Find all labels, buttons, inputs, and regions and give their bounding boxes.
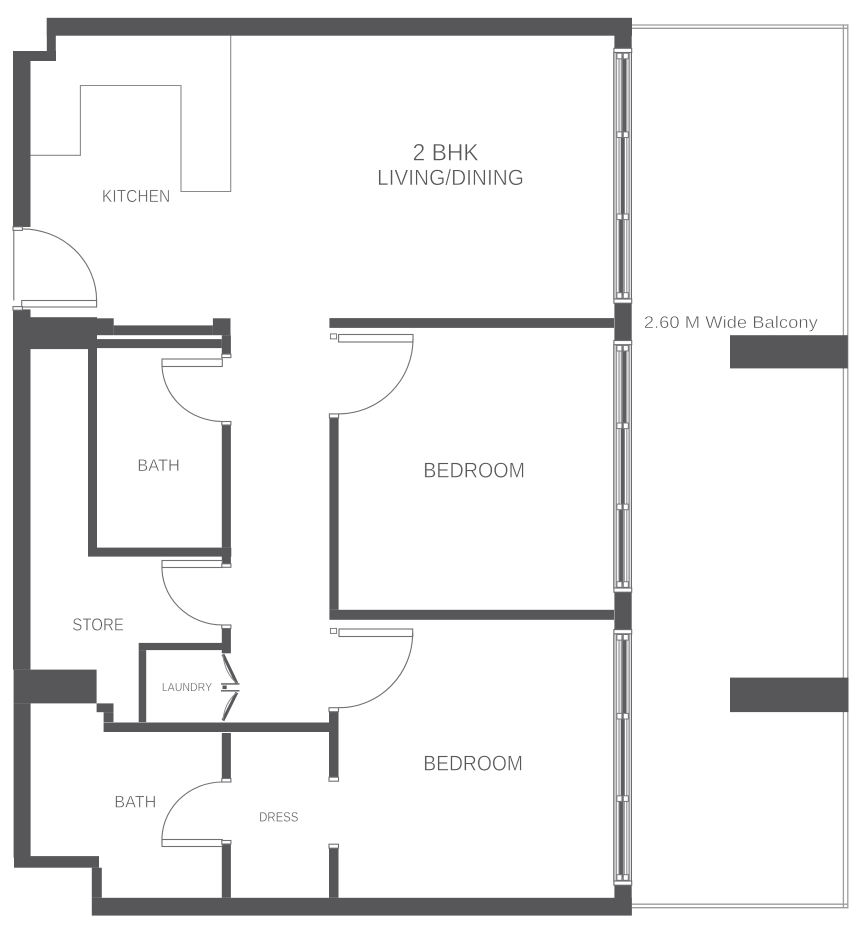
- svg-text:STORE: STORE: [72, 614, 124, 634]
- svg-text:KITCHEN: KITCHEN: [102, 186, 170, 206]
- svg-text:BATH: BATH: [137, 456, 180, 475]
- svg-text:2.60 M Wide Balcony: 2.60 M Wide Balcony: [644, 313, 819, 332]
- svg-text:LIVING/DINING: LIVING/DINING: [377, 165, 524, 190]
- svg-text:LAUNDRY: LAUNDRY: [162, 681, 213, 694]
- svg-text:BEDROOM: BEDROOM: [423, 752, 523, 776]
- svg-text:DRESS: DRESS: [259, 810, 298, 825]
- svg-text:BEDROOM: BEDROOM: [423, 458, 525, 482]
- svg-text:2 BHK: 2 BHK: [413, 140, 479, 167]
- svg-text:BATH: BATH: [114, 793, 156, 812]
